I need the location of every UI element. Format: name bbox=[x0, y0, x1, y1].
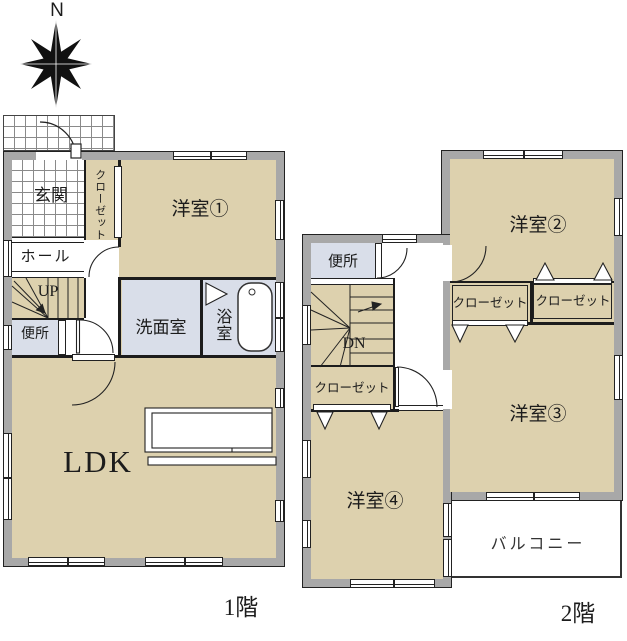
floorplan: N bbox=[0, 0, 627, 641]
closet-top-left-door bbox=[452, 320, 528, 326]
label-washroom: 洗面室 bbox=[128, 318, 194, 338]
closet-top-right-door bbox=[533, 278, 612, 284]
label-western-room-3: 洋室③ bbox=[497, 404, 579, 426]
label-western-room-2: 洋室② bbox=[497, 215, 579, 237]
label-entrance: 玄関 bbox=[28, 186, 74, 206]
label-western-room-1: 洋室① bbox=[159, 199, 241, 221]
window bbox=[614, 355, 623, 400]
room3-door-opening bbox=[442, 370, 452, 409]
room4-door-leaf bbox=[395, 367, 399, 407]
label-hall: ホール bbox=[15, 249, 77, 266]
closet-lower-door bbox=[313, 404, 391, 411]
stairs-dn-area bbox=[311, 284, 393, 367]
window bbox=[443, 503, 452, 537]
room-washroom bbox=[122, 278, 200, 355]
corridor-2f-top bbox=[377, 243, 443, 281]
label-stairs-up: UP bbox=[31, 283, 65, 301]
label-closet-1f: クローゼット bbox=[93, 167, 106, 243]
wall bbox=[12, 355, 72, 358]
window bbox=[302, 440, 311, 478]
entrance-step-line bbox=[12, 237, 84, 238]
entrance-step-line bbox=[12, 242, 84, 243]
room-balcony bbox=[445, 492, 622, 578]
window bbox=[275, 200, 284, 240]
closet-sliding-door bbox=[114, 166, 122, 238]
caption-floor1: 1階 bbox=[214, 595, 268, 621]
compass-rose-icon bbox=[20, 20, 92, 108]
label-ldk: LDK bbox=[58, 444, 138, 480]
window bbox=[3, 240, 12, 277]
corridor-1f bbox=[84, 240, 119, 355]
label-closet-top-left: クローゼット bbox=[450, 296, 530, 310]
window bbox=[302, 305, 311, 345]
stairs-threshold-2f bbox=[311, 278, 393, 285]
window bbox=[3, 325, 12, 350]
label-toilet-2f: 便所 bbox=[319, 254, 367, 271]
wall bbox=[84, 278, 86, 318]
wall bbox=[530, 281, 533, 325]
window bbox=[382, 234, 417, 243]
ldk-door-leaf bbox=[72, 354, 115, 361]
label-toilet-1f: 便所 bbox=[15, 327, 55, 343]
label-stairs-dn: DN bbox=[336, 335, 372, 353]
vestibule-1f bbox=[66, 318, 84, 355]
landing-2f bbox=[393, 281, 443, 411]
porch-tiles bbox=[3, 115, 115, 151]
label-closet-top-right: クローゼット bbox=[534, 294, 612, 308]
wall bbox=[528, 322, 614, 325]
window bbox=[173, 151, 247, 160]
wall bbox=[119, 277, 276, 280]
label-closet-lower: クローゼット bbox=[313, 381, 391, 395]
toilet-door-2f bbox=[375, 243, 382, 281]
window bbox=[275, 500, 284, 522]
window bbox=[3, 433, 12, 520]
window bbox=[350, 579, 435, 588]
wall bbox=[115, 355, 276, 358]
room4-door-threshold bbox=[399, 405, 443, 411]
toilet-door-1f bbox=[58, 320, 66, 355]
window bbox=[443, 539, 452, 577]
balcony-sliding-door bbox=[486, 492, 580, 501]
window bbox=[28, 557, 105, 566]
label-bathroom: 浴室 bbox=[212, 299, 230, 351]
compass-north-label: N bbox=[46, 0, 68, 22]
wall bbox=[200, 278, 203, 355]
window bbox=[302, 520, 311, 548]
room2-door-opening bbox=[442, 245, 452, 281]
window bbox=[483, 150, 563, 159]
caption-floor2: 2階 bbox=[551, 601, 605, 627]
label-western-room-4: 洋室④ bbox=[334, 491, 416, 513]
wall bbox=[118, 277, 121, 355]
window bbox=[614, 198, 623, 236]
wall bbox=[311, 365, 393, 367]
window bbox=[145, 557, 223, 566]
wall bbox=[12, 318, 84, 320]
wall bbox=[84, 160, 86, 240]
entrance-door-opening bbox=[36, 152, 82, 160]
stairs-threshold-1f bbox=[12, 271, 84, 278]
window bbox=[275, 282, 284, 352]
label-balcony: バルコニー bbox=[477, 536, 599, 554]
window bbox=[275, 388, 284, 408]
